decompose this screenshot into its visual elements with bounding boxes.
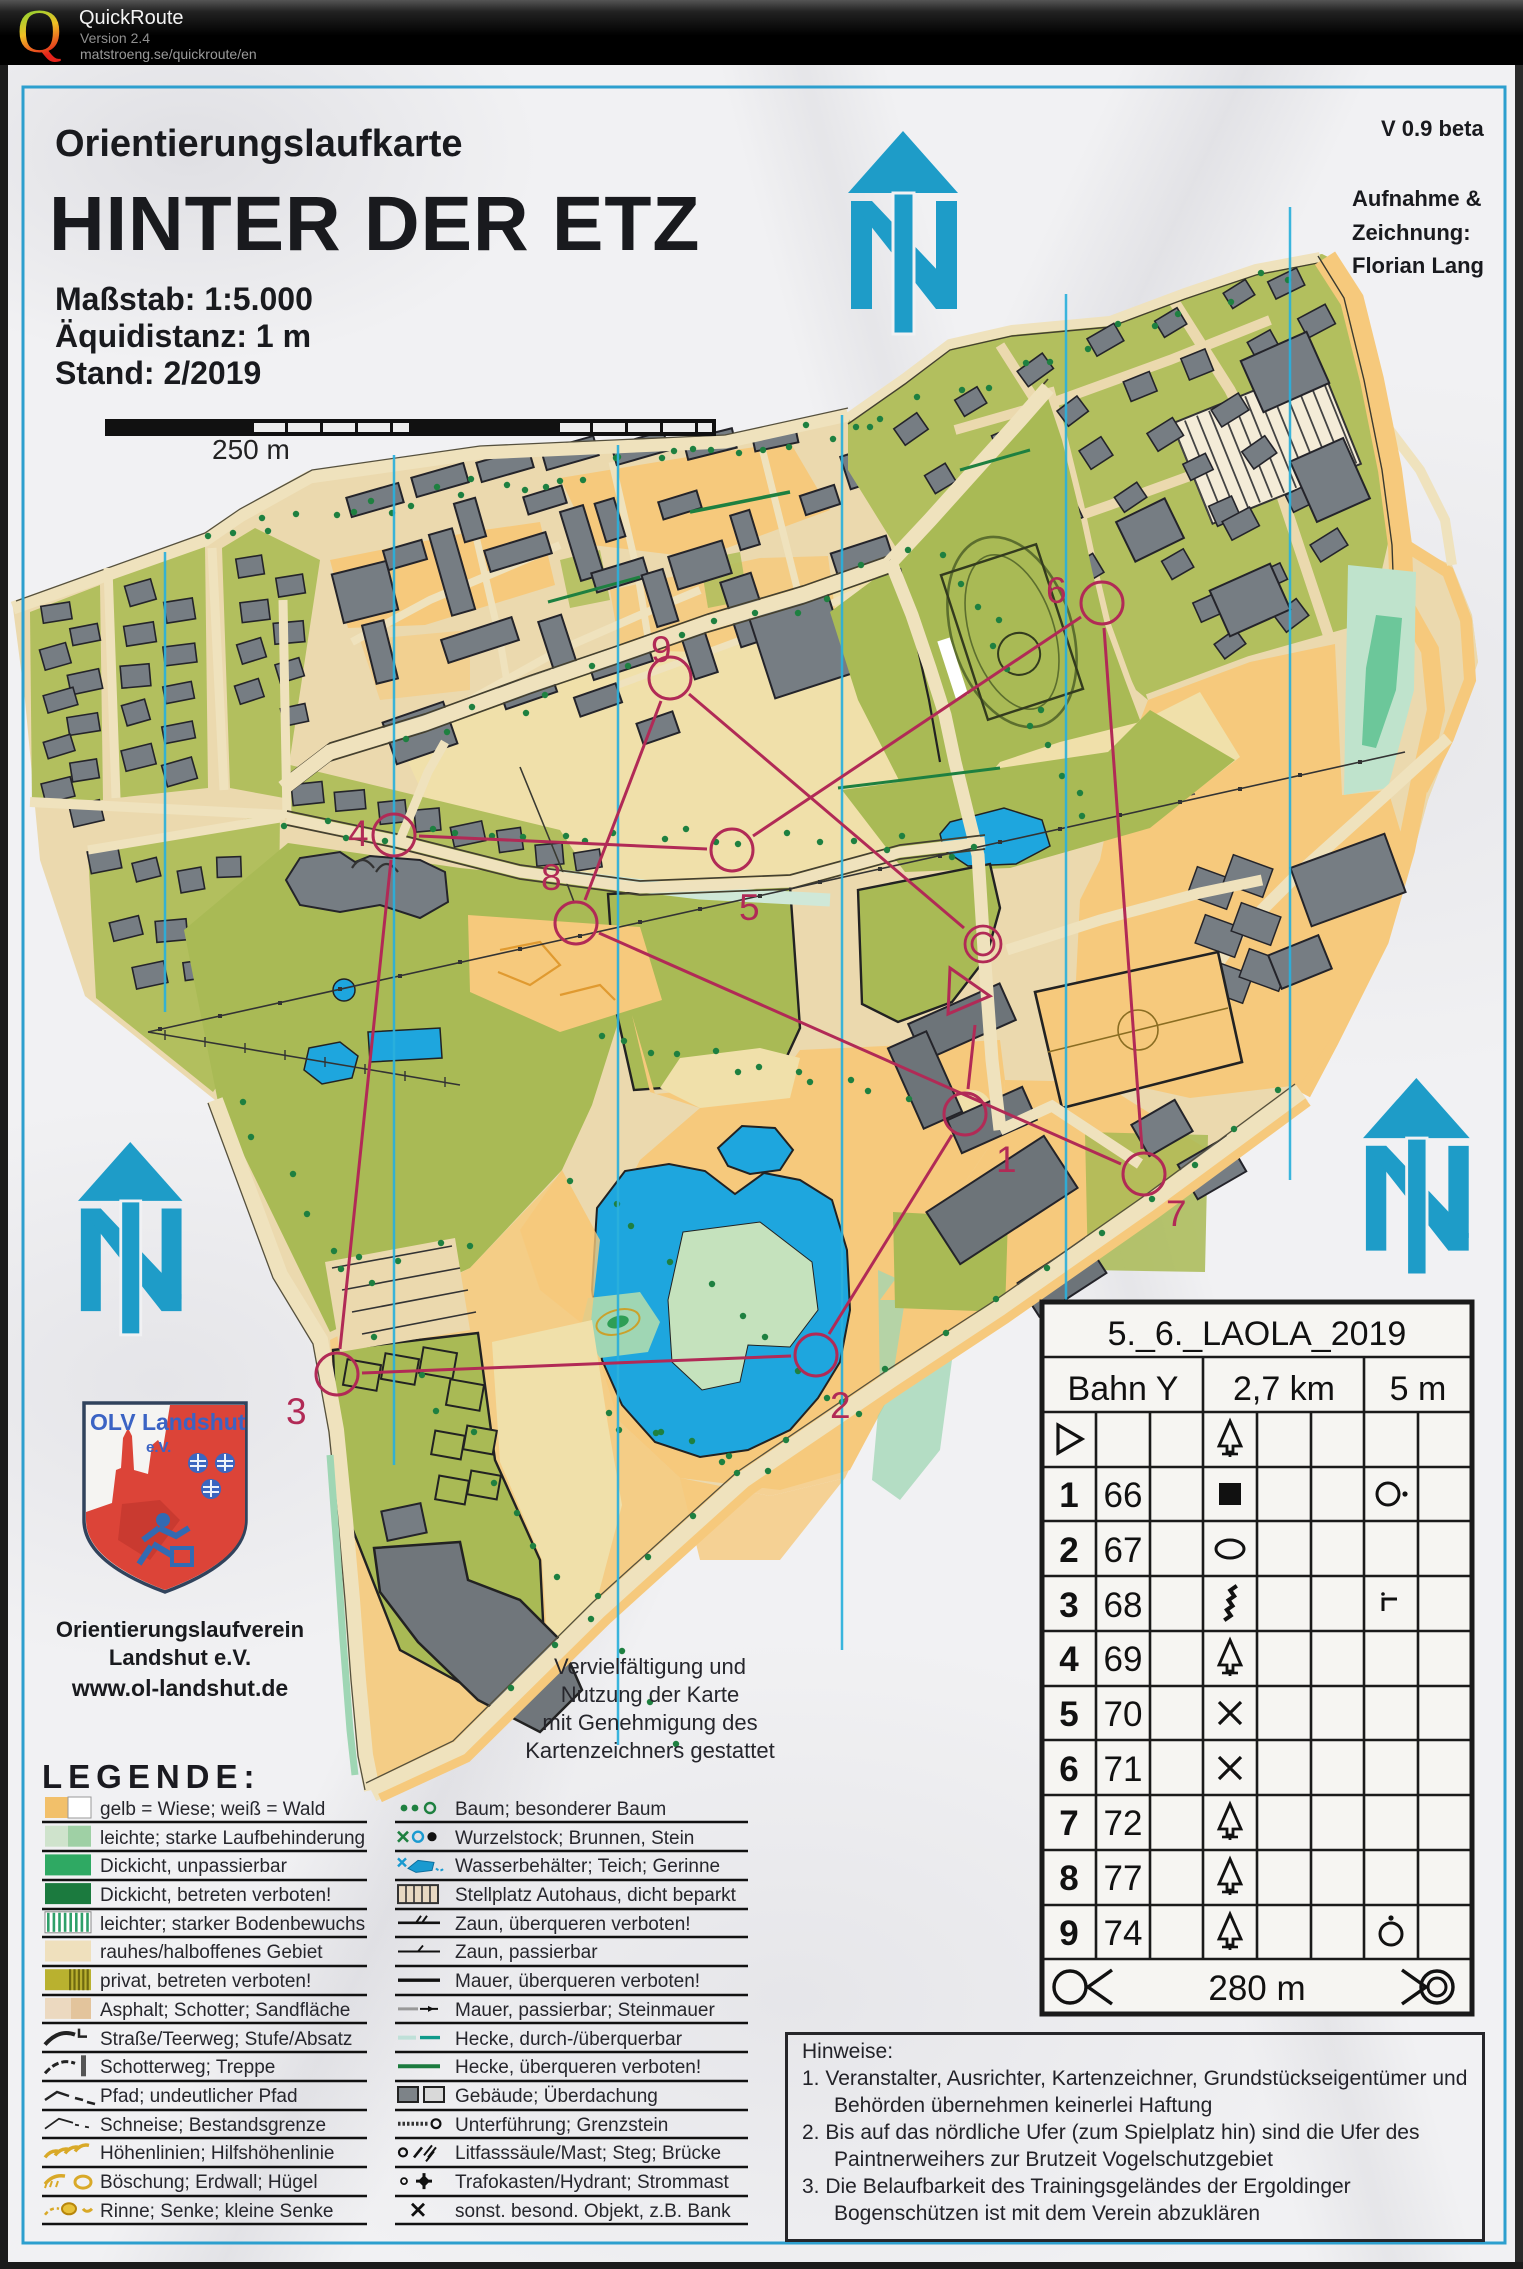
- svg-text:68: 68: [1104, 1586, 1143, 1625]
- svg-text:69: 69: [1104, 1640, 1143, 1679]
- svg-text:5: 5: [1059, 1695, 1078, 1734]
- svg-text:1: 1: [1059, 1476, 1078, 1515]
- svg-text:70: 70: [1104, 1695, 1143, 1734]
- svg-text:Bahn Y: Bahn Y: [1068, 1370, 1179, 1408]
- svg-text:6: 6: [1059, 1750, 1078, 1789]
- svg-text:66: 66: [1104, 1476, 1143, 1515]
- svg-text:8: 8: [1059, 1859, 1078, 1898]
- svg-text:9: 9: [1059, 1914, 1078, 1953]
- svg-text:74: 74: [1104, 1914, 1143, 1953]
- svg-text:77: 77: [1104, 1859, 1143, 1898]
- svg-text:2,7 km: 2,7 km: [1233, 1370, 1335, 1408]
- svg-text:5 m: 5 m: [1390, 1370, 1447, 1408]
- svg-text:4: 4: [1059, 1640, 1079, 1679]
- svg-text:7: 7: [1059, 1804, 1078, 1843]
- svg-text:5._6._LAOLA_2019: 5._6._LAOLA_2019: [1108, 1315, 1407, 1353]
- svg-text:72: 72: [1104, 1804, 1143, 1843]
- svg-text:71: 71: [1104, 1750, 1143, 1789]
- svg-text:280 m: 280 m: [1208, 1969, 1305, 2008]
- svg-text:67: 67: [1104, 1531, 1143, 1570]
- svg-text:2: 2: [1059, 1531, 1078, 1570]
- svg-text:3: 3: [1059, 1586, 1078, 1625]
